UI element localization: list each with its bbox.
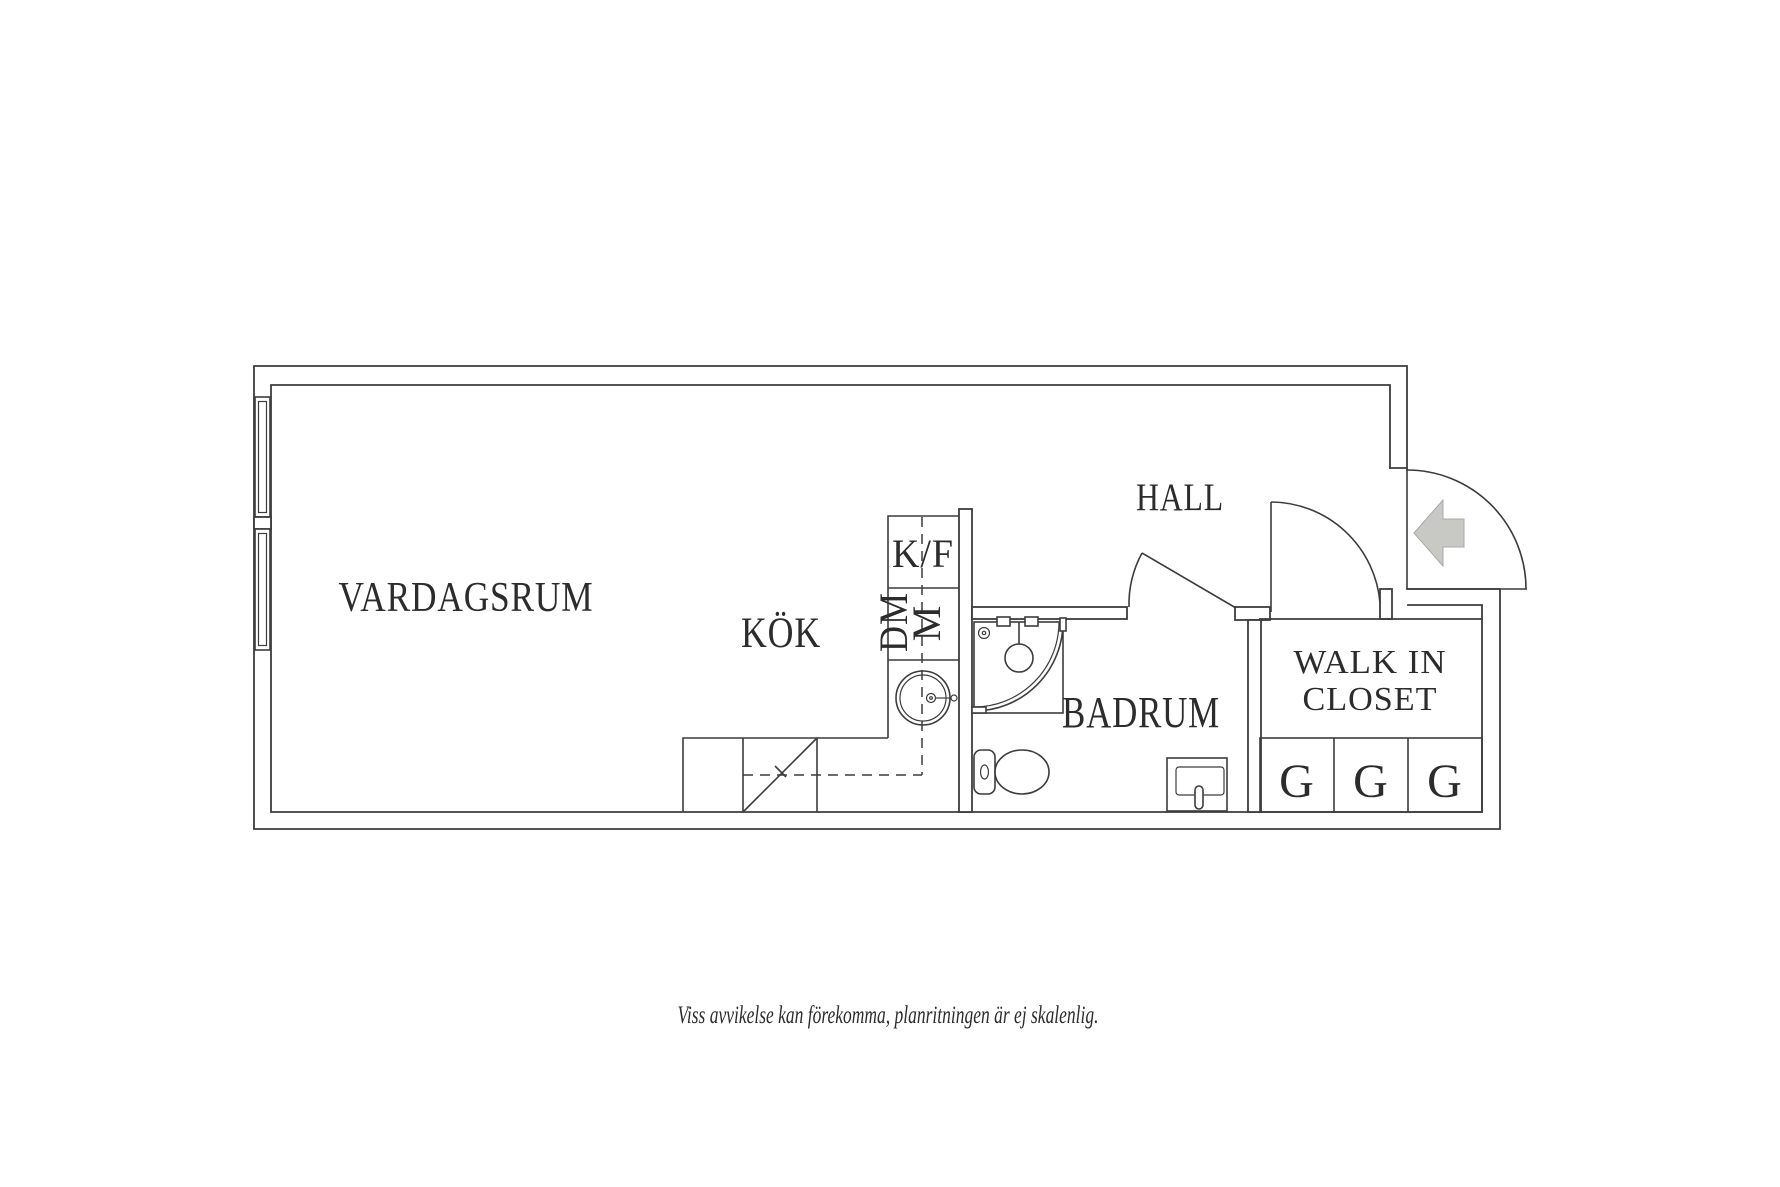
kitchen-bathroom-wall: [959, 509, 972, 812]
shower-mixer-right: [1025, 617, 1038, 626]
floor-plan-page: VARDAGSRUM KÖK HALL BADRUM WALK IN CLOSE…: [0, 0, 1780, 1187]
fridge-freezer-label: K/F: [892, 531, 954, 576]
washbasin-tap: [1195, 786, 1203, 809]
room-label-hall: HALL: [1136, 476, 1224, 519]
window-pier: [254, 517, 271, 529]
window-1: [255, 397, 270, 517]
room-label-closet: CLOSET: [1303, 681, 1438, 718]
shower-mixer-left: [997, 617, 1010, 626]
wardrobe-label-2: G: [1353, 755, 1389, 808]
bathroom-hall-wall: [972, 607, 1127, 619]
room-label-badrum: BADRUM: [1062, 688, 1220, 737]
bathroom-door-swing: [1129, 553, 1142, 607]
bathroom-door: [1129, 553, 1236, 608]
wardrobe-label-1: G: [1279, 755, 1315, 808]
window-2: [255, 529, 270, 650]
floor-plan-canvas: VARDAGSRUM KÖK HALL BADRUM WALK IN CLOSE…: [0, 0, 1780, 1187]
toilet-bowl: [995, 750, 1049, 794]
windows: [254, 397, 271, 650]
shower-door-handle-top: [1060, 618, 1066, 631]
microwave-label: M: [904, 605, 949, 642]
room-label-kok: KÖK: [741, 610, 821, 657]
hall-wic-wall-cross: [1235, 607, 1270, 620]
toilet: [974, 750, 1049, 794]
bathroom-door-leaf: [1142, 553, 1236, 608]
room-label-vardagsrum: VARDAGSRUM: [339, 575, 594, 621]
room-label-walk-in: WALK IN: [1294, 644, 1447, 681]
kitchen-sink: [896, 671, 957, 725]
wardrobe-label-3: G: [1427, 755, 1463, 808]
disclaimer-text: Viss avvikelse kan förekomma, planritnin…: [678, 1002, 1099, 1029]
shower-head: [1005, 622, 1033, 672]
entrance-arrow-icon: [1414, 500, 1464, 566]
wic-door-right-jamb: [1380, 589, 1392, 619]
wic-door: [1271, 502, 1380, 612]
toilet-tank: [974, 750, 995, 794]
washbasin: [1167, 758, 1227, 811]
shower-door-handle-bottom: [972, 707, 986, 713]
bathroom-wic-wall: [1248, 620, 1261, 812]
shower: [972, 617, 1066, 713]
wic-door-swing: [1271, 502, 1380, 603]
floor-drain: [979, 628, 990, 639]
